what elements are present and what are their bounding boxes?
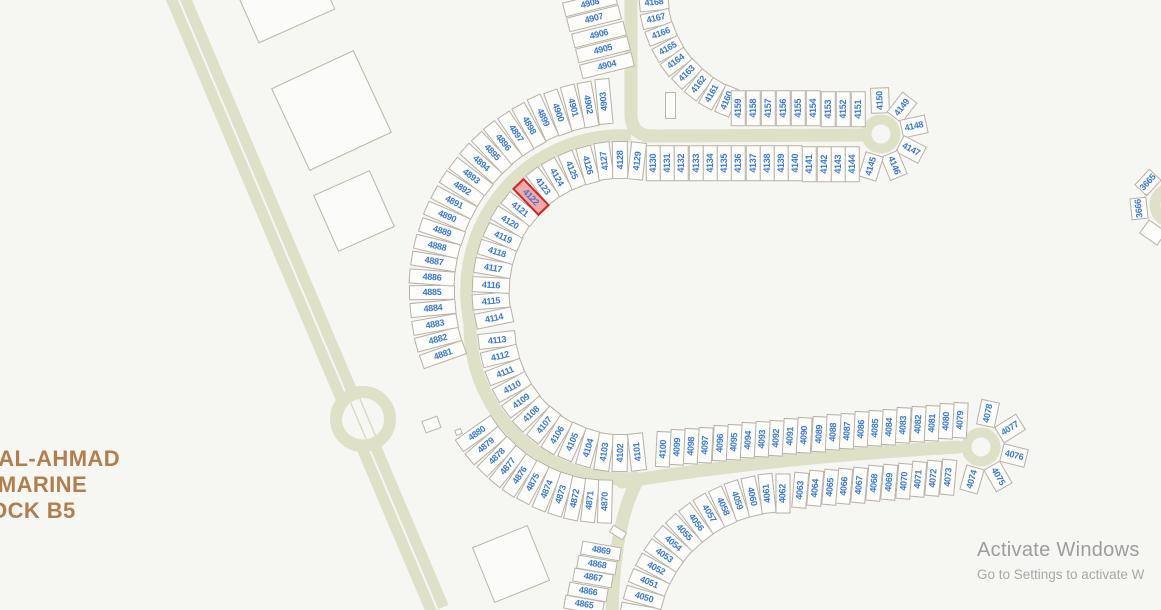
plot-4158[interactable]: 4158: [746, 90, 761, 126]
plot-number: 4137: [748, 154, 757, 173]
plot-number: 4867: [582, 572, 602, 584]
plot-number: 4168: [644, 0, 664, 8]
plot-number: 4869: [591, 545, 611, 557]
plot-number: 4083: [898, 416, 908, 435]
plot-number: 4158: [749, 99, 758, 118]
plot-number: 4131: [663, 154, 672, 173]
plot-number: 4118: [487, 245, 507, 259]
plot-4138[interactable]: 4138: [759, 146, 774, 182]
plot-number: 4090: [799, 426, 809, 445]
plot-4159[interactable]: 4159: [731, 90, 746, 126]
plot-number: 4881: [433, 347, 454, 362]
empty-parcel: [665, 92, 676, 119]
watermark-subtitle: Go to Settings to activate W: [977, 567, 1144, 582]
plot-number: 4125: [564, 159, 580, 180]
plot-4155[interactable]: 4155: [791, 91, 806, 127]
plot-number: 4103: [598, 442, 610, 462]
plot-number: 4882: [428, 333, 449, 347]
south-culdesac-ring: [967, 433, 996, 462]
plot-number: 4133: [691, 154, 700, 173]
plot-4153[interactable]: 4153: [821, 91, 836, 127]
plot-number: 4135: [720, 154, 729, 173]
plot-number: 4086: [856, 420, 866, 439]
plot-number: 4889: [431, 224, 452, 238]
plot-number: 4104: [581, 438, 595, 459]
plot-number: 4102: [616, 443, 625, 462]
plot-number: 4140: [791, 154, 800, 173]
plot-4079[interactable]: 4079: [952, 402, 968, 439]
plot-number: 4069: [883, 472, 894, 492]
plot-number: 4071: [913, 470, 924, 490]
north-street: [646, 135, 862, 136]
plot-number: 4129: [631, 151, 642, 171]
plot-number: 4872: [569, 488, 582, 508]
plot-4131[interactable]: 4131: [660, 145, 675, 181]
north-culdesac-ring: [867, 120, 896, 149]
plot-number: 4908: [580, 0, 600, 10]
plot-number: 4153: [824, 99, 833, 118]
plot-number: 4064: [809, 479, 820, 499]
plot-4870[interactable]: 4870: [597, 480, 613, 524]
plot-number: 4134: [705, 154, 714, 173]
plot-number: 4067: [854, 475, 865, 495]
plot-4139[interactable]: 4139: [774, 146, 789, 182]
plot-number: 4141: [805, 154, 814, 173]
plot-4140[interactable]: 4140: [788, 146, 803, 182]
plot-number: 4886: [423, 272, 442, 282]
plot-number: 4167: [646, 12, 666, 25]
plot-number: 4145: [864, 156, 878, 177]
plot-number: 4142: [819, 154, 828, 173]
block-label-line3: BLOCK B5: [0, 498, 120, 524]
plot-number: 4126: [581, 154, 595, 175]
plot-number: 4903: [598, 92, 609, 112]
plot-number: 4112: [490, 350, 510, 363]
plot-4134[interactable]: 4134: [703, 145, 718, 181]
plot-4073[interactable]: 4073: [939, 458, 957, 495]
plot-number: 4074: [965, 469, 979, 490]
plot-number: 4096: [715, 434, 725, 453]
plot-number: 4088: [828, 423, 838, 442]
plot-4115[interactable]: 4115: [472, 292, 511, 311]
plot-number: 4073: [943, 467, 954, 487]
plot-3666[interactable]: 3666: [1130, 197, 1149, 221]
plot-number: 4127: [598, 151, 610, 171]
plot-number: 4116: [482, 280, 501, 290]
plot-4151[interactable]: 4151: [851, 91, 866, 127]
plot-number: 4091: [785, 427, 795, 446]
plot-number: 4143: [833, 155, 842, 174]
plot-number: 4050: [633, 591, 654, 605]
plot-number: 4148: [904, 120, 924, 133]
plot-number: 4157: [764, 99, 773, 118]
plot-number: 4115: [482, 296, 501, 306]
plot-number: 4092: [771, 428, 781, 447]
plot-number: 4888: [427, 240, 447, 253]
plot-number: 4099: [672, 438, 682, 457]
plot-number: 4085: [870, 419, 880, 438]
plot-number: 4095: [729, 432, 739, 451]
plot-number: 4905: [593, 43, 613, 56]
plot-number: 4081: [927, 413, 937, 432]
plot-4885[interactable]: 4885: [409, 285, 455, 300]
watermark-title: Activate Windows: [977, 539, 1144, 562]
plot-number: 4072: [928, 469, 939, 489]
plot-number: 4147: [901, 141, 922, 158]
plot-number: 4152: [839, 99, 848, 118]
plot-number: 4156: [779, 99, 788, 118]
plot-number: 4093: [757, 430, 767, 449]
plot-number: 4132: [677, 154, 686, 173]
plot-4116[interactable]: 4116: [472, 276, 511, 294]
plot-number: 4059: [730, 490, 744, 511]
plot-number: 4079: [955, 410, 965, 429]
plot-number: 4154: [809, 99, 818, 118]
plot-number: 4077: [999, 420, 1020, 438]
plot-number: 4146: [886, 155, 902, 176]
plot-number: 4084: [884, 417, 894, 436]
plot-4130[interactable]: 4130: [646, 145, 661, 181]
plot-number: 4871: [584, 491, 595, 511]
plot-4154[interactable]: 4154: [806, 91, 821, 127]
plot-number: 4066: [839, 476, 850, 496]
plot-number: 4139: [776, 154, 785, 173]
block-label-line2: AL-MARINE: [0, 472, 120, 498]
plot-number: 3666: [1134, 199, 1145, 219]
plot-4135[interactable]: 4135: [717, 145, 732, 181]
activate-windows-watermark: Activate Windows Go to Settings to activ…: [977, 539, 1144, 582]
plot-number: 4089: [814, 424, 824, 443]
plot-4141[interactable]: 4141: [802, 146, 817, 182]
plot-number: 4150: [875, 90, 885, 109]
plot-4133[interactable]: 4133: [688, 145, 703, 181]
plot-4156[interactable]: 4156: [776, 90, 791, 126]
map-canvas[interactable]: 4908490749064905490448814882488348844885…: [0, 0, 1161, 610]
plot-number: 4155: [794, 99, 803, 118]
block-label: AH AL-AHMAD AL-MARINE BLOCK B5: [0, 446, 120, 524]
plot-number: 4062: [779, 484, 788, 503]
plot-number: 4885: [423, 288, 442, 297]
plot-number: 4900: [551, 102, 566, 123]
plot-number: 4151: [854, 100, 863, 119]
plot-number: 4068: [869, 474, 880, 494]
plot-number: 4887: [424, 256, 444, 268]
plot-number: 4870: [600, 492, 609, 511]
plot-number: 4904: [597, 58, 617, 71]
plot-number: 4078: [982, 404, 995, 424]
plot-number: 4070: [898, 471, 909, 491]
plot-number: 4868: [587, 558, 607, 570]
plot-number: 4101: [631, 442, 642, 462]
plot-number: 4113: [487, 334, 506, 345]
plot-number: 4144: [848, 155, 857, 174]
plot-number: 4080: [941, 412, 951, 431]
plot-number: 4087: [842, 421, 852, 440]
plot-number: 4907: [584, 12, 604, 25]
plot-number: 4097: [700, 435, 710, 454]
plot-number: 4884: [423, 303, 443, 314]
block-label-line1: AH AL-AHMAD: [0, 446, 120, 472]
plot-4132[interactable]: 4132: [674, 145, 689, 181]
plot-number: 4100: [658, 439, 668, 458]
plot-4128[interactable]: 4128: [612, 141, 629, 179]
plot-number: 4063: [795, 480, 806, 500]
plot-number: 4076: [1004, 449, 1024, 462]
plot-4062[interactable]: 4062: [776, 473, 791, 513]
plot-number: 4094: [743, 431, 753, 450]
plot-4142[interactable]: 4142: [816, 146, 831, 182]
east-edge-culdesac-ring: [1155, 188, 1161, 222]
plot-4152[interactable]: 4152: [836, 91, 851, 127]
plot-number: 4117: [483, 262, 503, 274]
plot-number: 4128: [616, 151, 625, 170]
plot-number: 4901: [566, 97, 580, 118]
plot-number: 4075: [989, 466, 1006, 487]
plot-4144[interactable]: 4144: [845, 146, 860, 182]
plot-4137[interactable]: 4137: [745, 146, 760, 182]
plot-number: 4883: [425, 318, 445, 330]
plot-number: 4906: [588, 27, 608, 40]
plot-4157[interactable]: 4157: [761, 90, 776, 126]
plot-4143[interactable]: 4143: [831, 146, 846, 182]
plot-number: 4902: [582, 94, 594, 114]
plot-number: 4061: [762, 484, 773, 504]
plot-number: 4098: [686, 437, 696, 456]
plot-number: 4138: [762, 154, 771, 173]
plot-number: 4130: [649, 154, 658, 173]
plot-number: 4149: [893, 97, 912, 117]
plot-number: 4082: [913, 415, 923, 434]
plot-4102[interactable]: 4102: [612, 434, 629, 472]
plot-4136[interactable]: 4136: [731, 145, 746, 181]
plot-number: 4136: [734, 154, 743, 173]
plot-number: 4865: [574, 599, 594, 610]
plot-number: 4065: [824, 478, 835, 498]
plot-number: 4159: [734, 99, 743, 118]
plot-number: 4060: [746, 486, 759, 506]
plot-number: 4866: [578, 585, 598, 597]
plot-number: 4114: [484, 311, 504, 324]
